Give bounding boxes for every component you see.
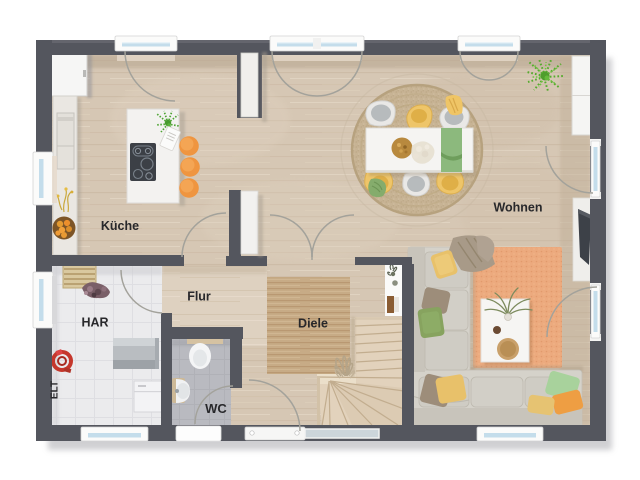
svg-text:HAR: HAR (81, 316, 108, 330)
svg-text:WC: WC (205, 401, 227, 416)
svg-text:Küche: Küche (101, 219, 139, 233)
svg-text:ELT: ELT (50, 381, 61, 399)
svg-text:Diele: Diele (298, 317, 328, 331)
svg-text:Wohnen: Wohnen (493, 201, 542, 215)
svg-text:Flur: Flur (187, 290, 211, 304)
